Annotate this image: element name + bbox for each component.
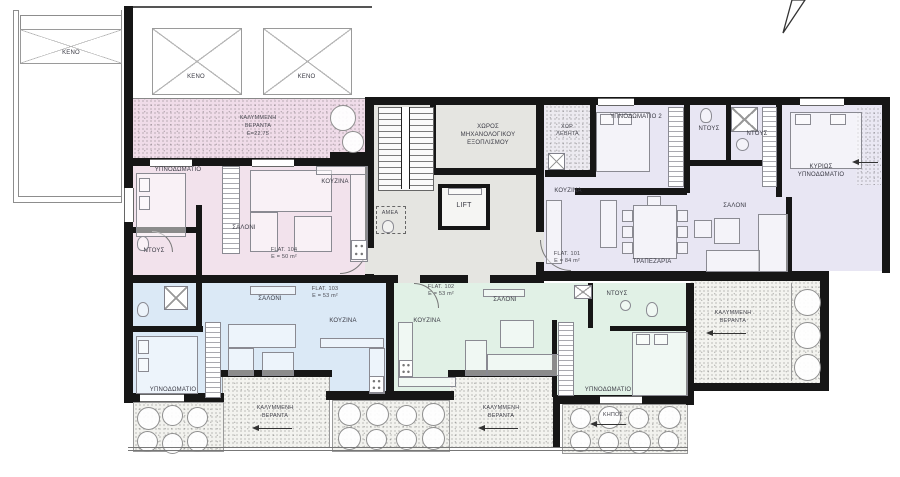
garden-right-label: ΚΗΠΟΣ [578, 412, 648, 419]
north-arrow-icon [770, 0, 815, 40]
wall-mech-south [430, 168, 538, 175]
shower-label-104: ΝΤΟΥΣ [134, 248, 174, 255]
bedroom-label-104: ΥΠΝΟΔΩΜΑΤΙΟ [132, 167, 224, 174]
shower-tray-101 [731, 107, 758, 132]
chair [677, 210, 688, 222]
chair [622, 242, 633, 254]
wall-bath104-right [196, 205, 202, 277]
window-bedroom102 [600, 396, 642, 404]
pillow [138, 340, 149, 354]
planter [396, 405, 417, 426]
kitchen-counter-103-top [320, 338, 384, 348]
amea-toilet [382, 220, 394, 233]
living-label-102: ΣΑΛΟΝΙ [477, 297, 533, 304]
veranda-top-label-2: ΒΕΡΑΝΤΑ [215, 123, 301, 130]
boiler-label-2: ΛΕΒΗΤΑ [545, 131, 590, 138]
planter [162, 405, 183, 426]
wall-bath103-right [196, 283, 202, 328]
wardrobe-master [762, 107, 777, 187]
kitchen-island-101 [600, 200, 617, 248]
planter [137, 431, 158, 452]
void-crossed-box-1 [152, 28, 242, 95]
window-master [800, 98, 844, 106]
stair-rail [401, 107, 410, 189]
coffee-table-103 [262, 352, 294, 376]
flat101-area: E = 84 m² [544, 258, 590, 265]
planter [658, 406, 681, 429]
planter-strip-line [791, 283, 792, 381]
shaft-grid-box [548, 153, 565, 170]
kitchen-label-104: ΚΟΥΖΙΝΑ [308, 179, 362, 186]
level-arrow-veranda102 [484, 428, 518, 429]
coffee-table-102 [500, 320, 534, 348]
toilet-flat102 [646, 302, 658, 317]
chair [622, 226, 633, 238]
level-arrow-veranda101 [712, 333, 746, 334]
plot-boundary-line-2 [128, 450, 688, 451]
pillow [830, 114, 846, 125]
tv-bench-102 [483, 289, 525, 297]
planter [338, 403, 361, 426]
kitchen-label-103: ΚΟΥΖΙΝΑ [316, 318, 370, 325]
veranda-top-label-1: ΚΑΛΥΜΜΕΝΗ [215, 115, 301, 122]
living-label-104: ΣΑΛΟΝΙ [216, 225, 272, 232]
wardrobe-102 [558, 322, 574, 396]
dining-table-101 [633, 205, 677, 259]
sofa-103-side [228, 348, 254, 376]
kitchen-counter-102-bottom [398, 377, 456, 387]
pillow [795, 114, 811, 125]
veranda-edge-line [133, 98, 365, 99]
wall-bath102-south [610, 326, 686, 331]
master-label-1: ΚΥΡΙΩΣ [786, 164, 856, 171]
void-crossed-box-left [20, 29, 122, 64]
void-crossed-box-2 [263, 28, 352, 95]
veranda-top-area: Ε=22.75 [215, 131, 301, 138]
planter [187, 407, 208, 428]
kitchen-label-101: ΚΟΥΖΙΝΑ [542, 188, 594, 195]
planter [137, 407, 160, 430]
wall-boiler-south [545, 170, 596, 177]
wall-flat101-south [536, 271, 828, 281]
void-label-left: ΚΕΝΟ [26, 50, 116, 57]
bedroom-label-103: ΥΠΝΟΔΩΜΑΤΙΟ [128, 387, 218, 394]
roof-edge-line [133, 6, 372, 8]
door-gap-flat102 [468, 275, 490, 283]
veranda103-label-2: ΒΕΡΑΝΤΑ [232, 413, 318, 420]
wall-veranda101-right [820, 271, 829, 391]
planter [794, 322, 821, 349]
void-label-1: ΚΕΝΟ [152, 74, 240, 81]
window-flat104-1 [150, 159, 192, 167]
sink-shower2 [736, 138, 749, 151]
living-label-101: ΣΑΛΟΝΙ [706, 203, 764, 210]
sofa-flat104 [250, 170, 332, 212]
veranda101-label-1: ΚΑΛΥΜΜΕΝΗ [690, 310, 776, 317]
void-label-2: ΚΕΝΟ [263, 74, 350, 81]
dining-label-101: ΤΡΑΠΕΖΑΡΙΑ [618, 259, 686, 266]
wall-stub-south [553, 402, 560, 448]
wall-bedroom2-right [684, 105, 690, 193]
sofa-102-side [465, 340, 487, 376]
plot-boundary-line [128, 447, 688, 448]
pillow [139, 178, 150, 192]
chair [677, 242, 688, 254]
sink-flat102 [620, 300, 631, 311]
veranda101-label-2: ΒΕΡΑΝΤΑ [690, 318, 776, 325]
planter [794, 289, 821, 316]
wall-kitchens-south [326, 391, 454, 400]
mech-room-label-3: ΕΞΟΠΛΙΣΜΟΥ [440, 140, 536, 147]
stove-102 [399, 360, 413, 377]
shower-label-102: ΝΤΟΥΣ [595, 291, 639, 298]
boiler-label-1: ΧΩΡ. [545, 124, 590, 131]
tv-bench-103 [250, 286, 296, 295]
level-arrow-veranda103 [258, 428, 292, 429]
planter [187, 431, 208, 452]
window-flat104-2 [252, 159, 294, 167]
sofa-102 [487, 354, 561, 376]
wall-right-exterior [882, 97, 890, 273]
mech-room-label-2: ΜΗΧΑΝΟΛΟΓΙΚΟΥ [440, 132, 536, 139]
planter [422, 403, 445, 426]
chair [647, 196, 661, 206]
wardrobe-flat104 [222, 166, 240, 254]
flat103-area: E = 53 m² [302, 293, 348, 300]
armchair-101 [694, 220, 712, 238]
planter [658, 431, 679, 452]
floor-plan: ΚΕΝΟ ΚΕΝΟ ΚΕΝΟ [0, 0, 900, 477]
flat101-name: FLAT. 101 [544, 251, 590, 258]
amea-label: ΑΜΕΑ [376, 210, 404, 217]
flat102-area: E = 53 m² [418, 291, 464, 298]
mech-room-label-1: ΧΩΡΟΣ [440, 124, 536, 131]
flat104-area: E = 50 m² [261, 254, 307, 261]
door-gap-flat103 [398, 275, 420, 283]
chair [677, 226, 688, 238]
lift-car [448, 188, 482, 195]
veranda102-label-1: ΚΑΛΥΜΜΕΝΗ [458, 405, 544, 412]
level-arrow-side-veranda [858, 162, 878, 163]
living-label-103: ΣΑΛΟΝΙ [242, 296, 298, 303]
wall-bed103-top [133, 326, 203, 332]
shower2-label-101: ΝΤΟΥΣ [734, 131, 780, 138]
planter [794, 354, 821, 381]
window-bedroom2 [598, 98, 634, 106]
window-flat104-west [124, 188, 134, 222]
shower1-label-101: ΝΤΟΥΣ [688, 126, 730, 133]
sofa-101-horizontal [706, 250, 760, 272]
sofa-flat104-side [250, 212, 278, 252]
planter [366, 403, 389, 426]
flat104-name: FLAT. 104 [261, 247, 307, 254]
wall-veranda101-south [688, 383, 829, 391]
lift-label: LIFT [438, 202, 490, 209]
veranda103-label-1: ΚΑΛΥΜΜΕΝΗ [232, 405, 318, 412]
planter [342, 131, 364, 153]
flat102-name: FLAT. 102 [418, 284, 464, 291]
armchair-101b [714, 218, 740, 244]
chair [622, 210, 633, 222]
planter [570, 431, 591, 452]
sofa-103 [228, 324, 296, 348]
pillow [636, 334, 650, 345]
master-label-2: ΥΠΝΟΔΩΜΑΤΙΟ [780, 172, 862, 179]
sofa-101-vertical [758, 214, 788, 272]
toilet-shower1 [700, 108, 712, 123]
window-bedroom103 [140, 394, 184, 402]
pillow [654, 334, 668, 345]
pillow [139, 196, 150, 210]
planter [330, 105, 356, 131]
veranda102-label-2: ΒΕΡΑΝΤΑ [458, 413, 544, 420]
toilet-flat103 [137, 302, 149, 317]
stove-flat104 [351, 240, 367, 260]
laundry-box [574, 285, 592, 299]
pillow [138, 358, 149, 372]
shower-tray-103 [164, 286, 188, 310]
flat103-name: FLAT. 103 [302, 286, 348, 293]
wall-flats-divider [386, 283, 394, 397]
bedroom2-label-101: ΥΠΝΟΔΩΜΑΤΙΟ 2 [590, 114, 682, 121]
stove-103 [369, 376, 384, 393]
bedroom-label-102: ΥΠΝΟΔΩΜΑΤΙΟ [568, 387, 648, 394]
level-arrow-garden-right [596, 424, 626, 425]
kitchen-label-102: ΚΟΥΖΙΝΑ [400, 318, 454, 325]
